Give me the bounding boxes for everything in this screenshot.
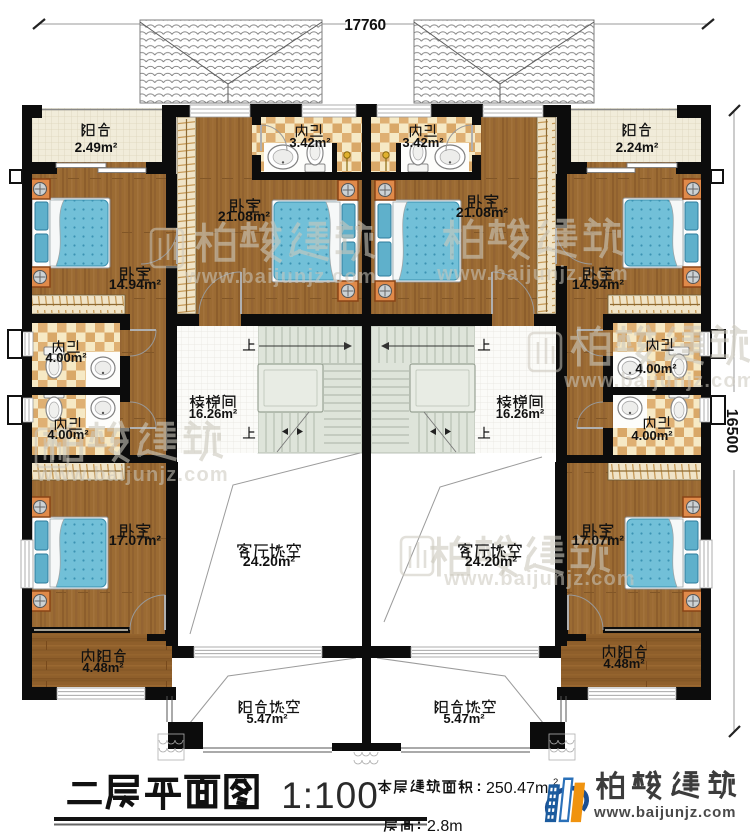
svg-text:17.07m²: 17.07m² [572, 532, 624, 548]
svg-text:17.07m²: 17.07m² [109, 532, 161, 548]
svg-text:4.00m²: 4.00m² [631, 428, 673, 443]
svg-text::: : [477, 778, 482, 795]
svg-text:250.47m: 250.47m [486, 780, 548, 797]
svg-text:4.00m²: 4.00m² [635, 361, 677, 376]
svg-text:1:100: 1:100 [281, 775, 379, 816]
svg-text:www.baijunjz.com: www.baijunjz.com [443, 568, 636, 590]
svg-text:17760: 17760 [344, 17, 386, 34]
svg-text:14.94m²: 14.94m² [109, 276, 161, 292]
svg-text:24.20m²: 24.20m² [465, 553, 517, 569]
svg-text:2.24m²: 2.24m² [616, 140, 659, 155]
svg-text:2.49m²: 2.49m² [75, 140, 118, 155]
svg-text:16.26m²: 16.26m² [189, 406, 238, 421]
svg-text:21.08m²: 21.08m² [218, 208, 270, 224]
svg-text:www.baijunjz.com: www.baijunjz.com [593, 804, 736, 821]
svg-text:3.42m²: 3.42m² [402, 135, 444, 150]
svg-text:www.baijunjz.com: www.baijunjz.com [36, 464, 229, 486]
svg-text::: : [417, 816, 422, 833]
svg-text:4.48m²: 4.48m² [603, 656, 645, 671]
svg-text:5.47m²: 5.47m² [246, 711, 288, 726]
svg-text:www.baijunjz.com: www.baijunjz.com [184, 266, 377, 288]
svg-text:3.42m²: 3.42m² [289, 135, 331, 150]
svg-text:2.8m: 2.8m [427, 818, 463, 835]
svg-text:24.20m²: 24.20m² [243, 553, 295, 569]
svg-text:21.08m²: 21.08m² [456, 204, 508, 220]
svg-text:14.94m²: 14.94m² [572, 276, 624, 292]
svg-text:16.26m²: 16.26m² [496, 406, 545, 421]
svg-text:4.48m²: 4.48m² [82, 660, 124, 675]
svg-text:4.00m²: 4.00m² [47, 427, 89, 442]
svg-text:4.00m²: 4.00m² [45, 350, 87, 365]
svg-text:5.47m²: 5.47m² [443, 711, 485, 726]
